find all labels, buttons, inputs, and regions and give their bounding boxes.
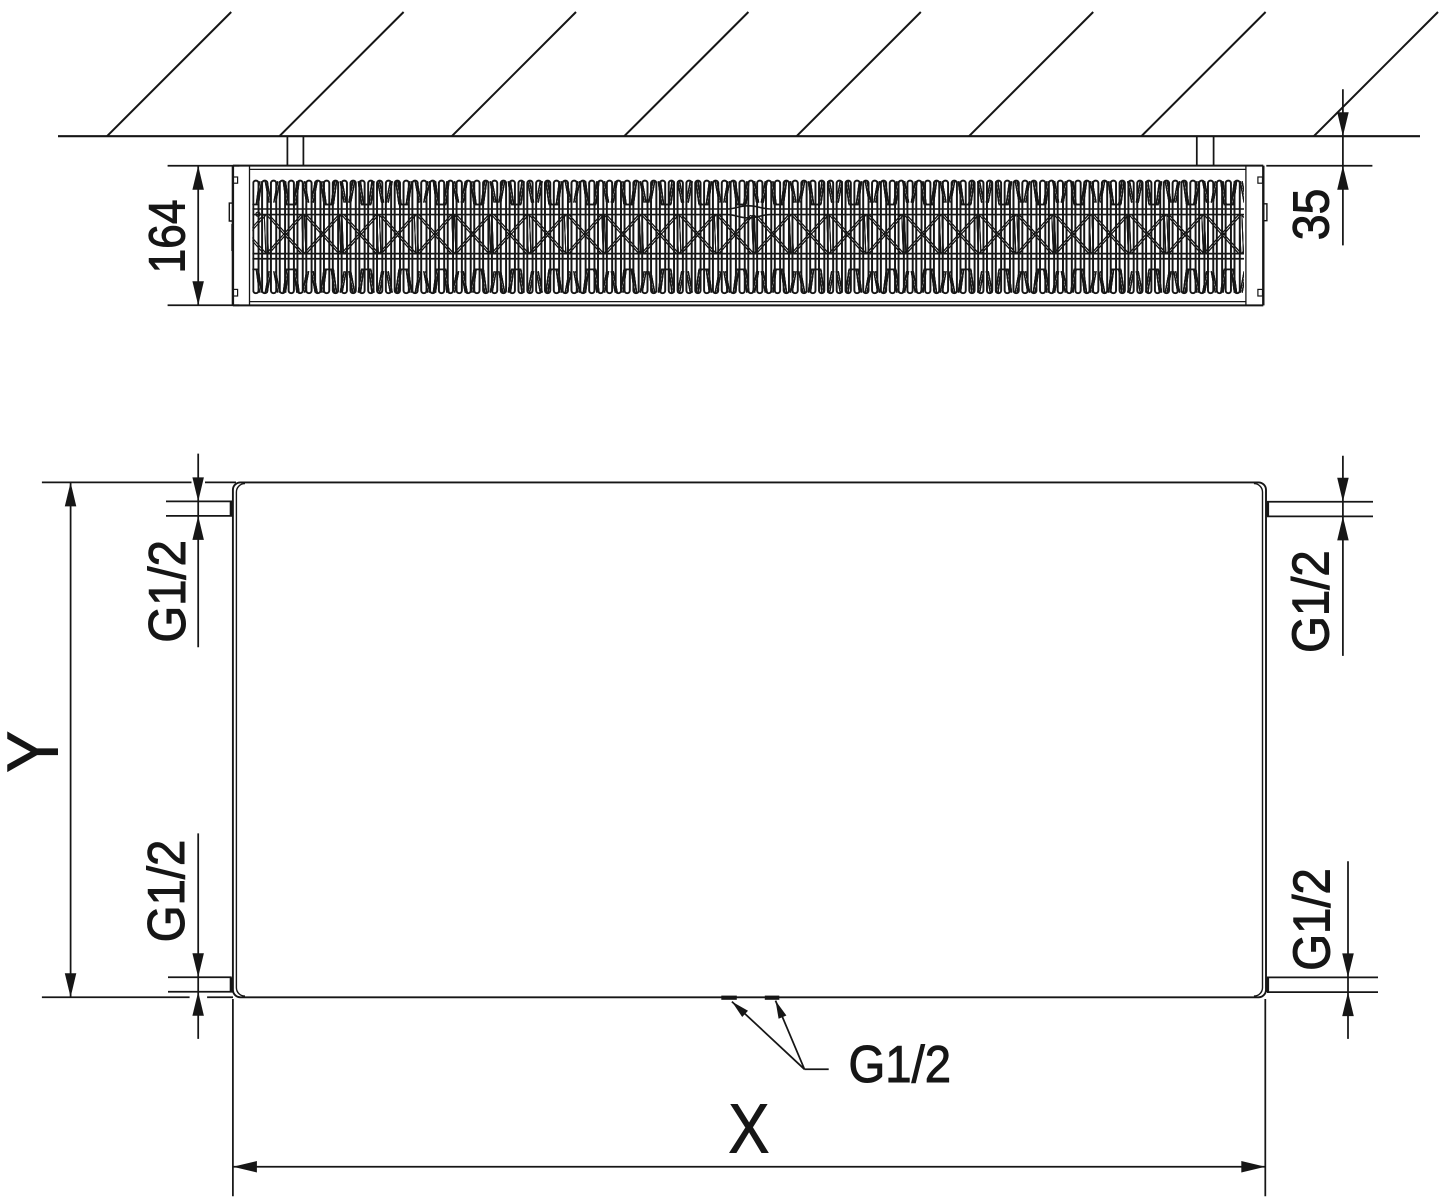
svg-text:35: 35 <box>1283 189 1339 241</box>
svg-text:G1/2: G1/2 <box>137 840 196 943</box>
svg-text:G1/2: G1/2 <box>1282 868 1341 971</box>
svg-text:G1/2: G1/2 <box>1281 550 1340 653</box>
svg-text:Y: Y <box>0 731 73 773</box>
svg-text:G1/2: G1/2 <box>849 1035 952 1094</box>
svg-text:G1/2: G1/2 <box>138 540 197 643</box>
svg-text:X: X <box>728 1090 769 1168</box>
svg-text:164: 164 <box>140 199 197 273</box>
